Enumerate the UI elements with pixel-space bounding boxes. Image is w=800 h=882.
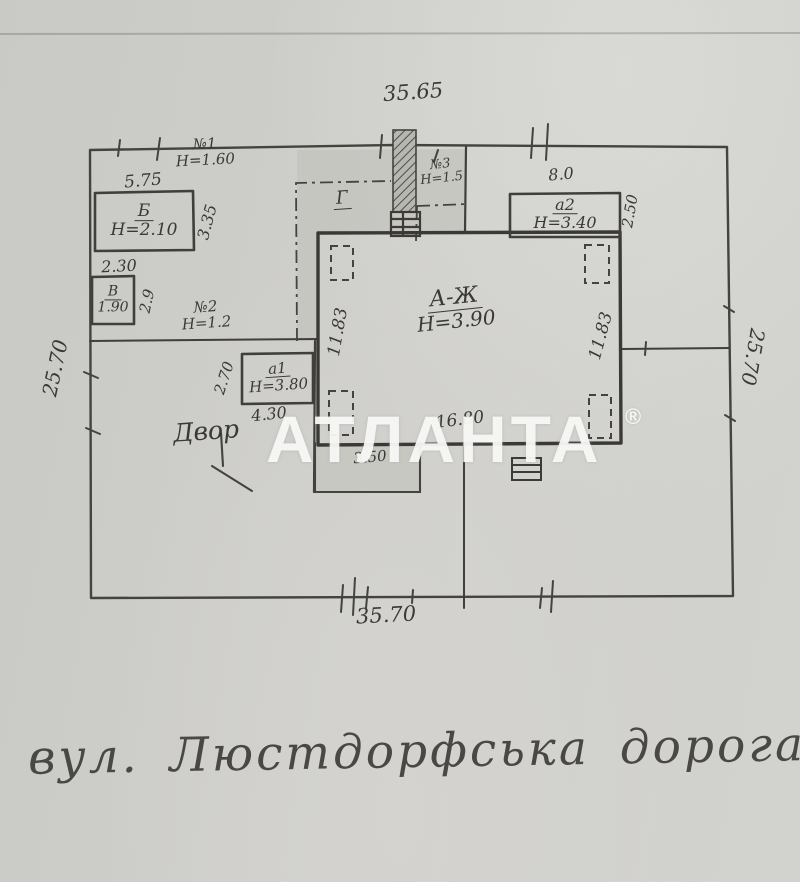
structure-n2-label: №2 Н=1.2 — [180, 297, 232, 333]
shed-b-gap: 2.30 — [101, 256, 138, 277]
veranda-g-label: Г — [332, 187, 351, 209]
scan-fold-line — [0, 33, 800, 34]
shed-b-width: 5.75 — [123, 169, 162, 192]
watermark-text: АТЛАНТА — [266, 406, 603, 472]
annex-a2-label: а2 Н=3.40 — [534, 196, 597, 232]
annex-a2-width: 8.0 — [547, 163, 574, 184]
main-building-label: А-Ж Н=3.90 — [413, 282, 496, 336]
structure-n3-label: №3 Н=1.5 — [418, 156, 464, 188]
registered-mark-icon: ® — [625, 404, 641, 430]
structure-n1-label: №1 Н=1.60 — [175, 134, 236, 169]
plot-dim-bottom: 35.70 — [355, 601, 416, 628]
shed-b-label: Б Н=2.10 — [111, 202, 178, 240]
scanned-site-plan-page: 35.65 35.70 25.70 25.70 №1 Н=1.60 5.75 Б… — [0, 0, 800, 882]
plot-dim-top: 35.65 — [382, 78, 444, 106]
yard-label: Двор — [172, 414, 240, 448]
shed-v-label: В 1.90 — [97, 284, 128, 315]
annex-a1-label: а1 Н=3.80 — [247, 358, 308, 395]
